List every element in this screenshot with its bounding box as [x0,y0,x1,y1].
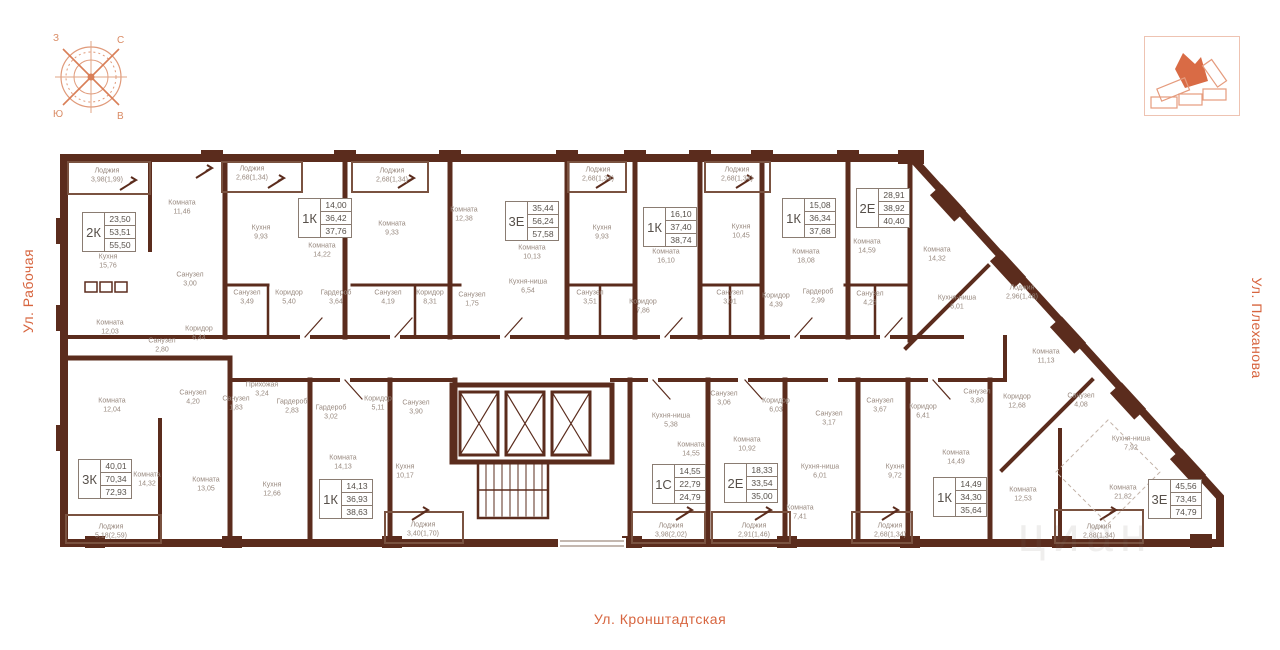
room-name: Санузел [402,399,429,408]
room-label: Санузел 3,00 [176,271,203,289]
apartment-area-total: 24,79 [675,490,705,503]
room-area: 12,04 [98,406,125,415]
room-name: Коридор [762,292,790,301]
apartment-info-box: 1К 14,00 36,42 37,76 [298,198,352,238]
room-label: Кухня-ниша 7,92 [1112,435,1150,453]
room-label: Кухня-ниша 6,54 [509,278,547,296]
room-area: 16,10 [652,257,679,266]
room-name: Лоджия [407,521,439,530]
room-name: Комната [168,199,195,208]
room-name: Коридор [762,397,790,406]
room-label: Комната 10,92 [733,436,760,454]
room-area: 6,03 [762,406,790,415]
apartment-area-living: 36,34 [805,211,835,224]
room-area: 4,28 [856,299,883,308]
apartment-area-living-min: 15,08 [805,199,835,211]
room-label: Лоджия 2,68(1,34) [376,167,408,185]
room-name: Кухня [252,224,271,233]
room-name: Гардероб [316,404,347,413]
apartment-type: 3Е [506,202,528,240]
room-area: 12,68 [1003,402,1031,411]
apartment-info-box: 2Е 28,91 38,92 40,40 [856,188,910,228]
room-area: 6,41 [909,412,937,421]
apartment-area-living-min: 23,50 [105,213,135,225]
room-label: Комната 13,05 [192,476,219,494]
room-name: Комната [133,471,160,480]
room-name: Комната [853,238,880,247]
room-area: 2,68(1,34) [376,176,408,185]
room-area: 2,91(1,46) [738,531,770,540]
room-area: 14,55 [677,450,704,459]
room-area: 14,49 [942,458,969,467]
room-name: Санузел [856,290,883,299]
room-name: Коридор [275,289,303,298]
room-name: Прихожая [246,381,278,390]
apartment-area-living: 34,30 [956,490,986,503]
room-name: Лоджия [738,522,770,531]
apartment-area-living: 36,93 [342,492,372,505]
apartment-area-total: 38,74 [666,233,696,246]
room-area: 1,75 [458,300,485,309]
room-name: Санузел [576,289,603,298]
room-label: Гардероб 3,64 [321,289,352,307]
room-label: Санузел 3,80 [963,388,990,406]
room-name: Лоджия [376,167,408,176]
room-area: 14,59 [853,247,880,256]
room-name: Кухня-ниша [509,278,547,287]
room-label: Комната 11,46 [168,199,195,217]
apartment-area-total: 72,93 [101,485,131,498]
room-area: 1,83 [222,404,249,413]
apartment-info-box: 1С 14,55 22,79 24,79 [652,464,706,504]
room-area: 7,92 [1112,444,1150,453]
room-label: Санузел 3,51 [576,289,603,307]
room-label: Лоджия 3,40(1,70) [407,521,439,539]
watermark: циан [1018,508,1154,563]
apartment-type: 2Е [725,464,747,502]
room-area: 3,51 [576,298,603,307]
room-label: Санузел 4,19 [374,289,401,307]
apartment-area-total: 35,00 [747,489,777,502]
apartment-type: 3Е [1149,480,1171,518]
room-area: 14,13 [329,463,356,472]
room-label: Кухня 9,72 [886,463,905,481]
room-label: Комната 16,10 [652,248,679,266]
room-area: 5,11 [364,404,392,413]
room-label: Комната 10,13 [518,244,545,262]
room-area: 3,98(1,99) [91,176,123,185]
room-name: Комната [923,246,950,255]
room-label: Комната 12,53 [1009,486,1036,504]
apartment-type: 1К [783,199,805,237]
room-label: Комната 12,38 [450,206,477,224]
room-area: 3,91 [716,298,743,307]
room-name: Гардероб [277,398,308,407]
apartment-info-box: 1К 14,49 34,30 35,64 [933,477,987,517]
room-area: 2,83 [277,407,308,416]
room-name: Санузел [710,390,737,399]
room-label: Комната 14,32 [923,246,950,264]
room-name: Санузел [1067,392,1094,401]
room-name: Санузел [458,291,485,300]
room-name: Санузел [815,410,842,419]
apartment-info-box: 2К 23,50 53,51 55,50 [82,212,136,252]
room-name: Комната [518,244,545,253]
apartment-area-living: 53,51 [105,225,135,238]
room-area: 7,86 [629,307,657,316]
room-label: Коридор 5,11 [364,395,392,413]
apartment-area-living-min: 14,49 [956,478,986,490]
apartment-area-living: 38,92 [879,201,909,214]
room-name: Лоджия [582,166,614,175]
room-label: Лоджия 3,98(2,02) [655,522,687,540]
room-area: 13,05 [192,485,219,494]
room-label: Лоджия 2,68(1,34) [236,165,268,183]
room-name: Лоджия [721,166,753,175]
apartment-area-total: 35,64 [956,503,986,516]
floor-plan-page: З С Ю В Ул. Рабочая Ул. Плеханова Ул. Кр… [0,0,1280,650]
room-label: Коридор 12,68 [1003,393,1031,411]
room-area: 9,72 [886,472,905,481]
apartment-area-living-min: 16,10 [666,208,696,220]
apartment-area-living: 33,54 [747,476,777,489]
room-area: 11,13 [1032,357,1059,366]
apartment-area-living-min: 40,01 [101,460,131,472]
room-name: Коридор [185,325,213,334]
room-label: Коридор 6,03 [762,397,790,415]
room-area: 3,80 [963,397,990,406]
room-area: 2,80 [148,346,175,355]
room-area: 2,99 [803,297,834,306]
room-name: Санузел [233,289,260,298]
room-label: Комната 14,32 [133,471,160,489]
room-name: Санузел [963,388,990,397]
room-name: Лоджия [236,165,268,174]
room-area: 3,17 [815,419,842,428]
room-label: Лоджия 2,68(1,34) [721,166,753,184]
room-label: Лоджия 5,18(2,59) [95,523,127,541]
room-name: Комната [329,454,356,463]
room-area: 4,08 [1067,401,1094,410]
room-name: Кухня-ниша [938,294,976,303]
room-label: Санузел 3,17 [815,410,842,428]
room-name: Кухня [263,481,282,490]
room-name: Комната [677,441,704,450]
room-label: Коридор 7,86 [629,298,657,316]
room-name: Комната [450,206,477,215]
apartment-info-box: 1К 15,08 36,34 37,68 [782,198,836,238]
room-label: Комната 14,22 [308,242,335,260]
room-area: 11,46 [168,208,195,217]
room-area: 4,39 [762,301,790,310]
apartment-type: 2Е [857,189,879,227]
room-label: Лоджия 2,68(1,34) [874,522,906,540]
room-area: 2,68(1,34) [236,174,268,183]
room-area: 3,24 [246,390,278,399]
room-name: Коридор [909,403,937,412]
room-name: Кухня-ниша [1112,435,1150,444]
room-area: 3,98(2,02) [655,531,687,540]
room-label: Комната 14,59 [853,238,880,256]
room-area: 12,66 [263,490,282,499]
apartment-area-total: 74,79 [1171,505,1201,518]
room-area: 14,22 [308,251,335,260]
apartment-area-living-min: 14,13 [342,480,372,492]
room-label: Гардероб 2,83 [277,398,308,416]
room-name: Коридор [364,395,392,404]
room-area: 5,38 [652,421,690,430]
room-name: Комната [942,449,969,458]
room-area: 3,02 [316,413,347,422]
room-label: Санузел 2,80 [148,337,175,355]
room-label: Кухня 9,93 [252,224,271,242]
room-label: Комната 12,04 [98,397,125,415]
room-label: Коридор 6,41 [909,403,937,421]
room-area: 4,19 [374,298,401,307]
room-area: 3,40(1,70) [407,530,439,539]
room-area: 12,03 [96,328,123,337]
room-name: Гардероб [321,289,352,298]
room-area: 2,68(1,34) [874,531,906,540]
room-name: Коридор [416,289,444,298]
room-name: Комната [98,397,125,406]
room-name: Кухня [886,463,905,472]
room-area: 12,53 [1009,495,1036,504]
room-name: Комната [308,242,335,251]
apartment-area-total: 55,50 [105,238,135,251]
room-name: Санузел [374,289,401,298]
room-name: Лоджия [874,522,906,531]
room-label: Санузел 3,49 [233,289,260,307]
room-label: Кухня-ниша 6,01 [801,463,839,481]
apartment-info-box: 2Е 18,33 33,54 35,00 [724,463,778,503]
room-label: Лоджия 2,68(1,34) [582,166,614,184]
room-label: Комната 11,13 [1032,348,1059,366]
site-plan-icon [1145,37,1237,113]
room-label: Комната 18,08 [792,248,819,266]
room-label: Санузел 4,28 [856,290,883,308]
site-plan-minimap [1144,36,1240,116]
room-name: Кухня [732,223,751,232]
room-area: 5,18(2,59) [95,532,127,541]
apartment-type: 1К [299,199,321,237]
room-label: Санузел 3,06 [710,390,737,408]
street-label-rabochaya: Ул. Рабочая [20,231,36,351]
room-label: Комната 14,55 [677,441,704,459]
room-area: 2,68(1,34) [721,175,753,184]
room-label: Гардероб 3,02 [316,404,347,422]
room-label: Лоджия 2,96(1,48) [1006,284,1038,302]
room-name: Санузел [179,389,206,398]
apartment-type: 1К [644,208,666,246]
room-area: 14,32 [923,255,950,264]
room-name: Комната [96,319,123,328]
room-label: Комната 12,03 [96,319,123,337]
room-area: 12,38 [450,215,477,224]
apartment-type: 1К [934,478,956,516]
room-label: Лоджия 2,91(1,46) [738,522,770,540]
room-area: 6,01 [938,303,976,312]
room-name: Комната [652,248,679,257]
room-name: Комната [733,436,760,445]
room-area: 2,68(1,34) [582,175,614,184]
room-area: 7,41 [786,513,813,522]
room-name: Комната [792,248,819,257]
compass-west-label: З [53,33,59,44]
room-label: Коридор 4,39 [762,292,790,310]
room-name: Комната [378,220,405,229]
room-area: 2,96(1,48) [1006,293,1038,302]
room-name: Кухня [396,463,415,472]
room-name: Лоджия [655,522,687,531]
room-area: 15,76 [99,262,118,271]
room-name: Гардероб [803,288,834,297]
room-label: Кухня-ниша 5,38 [652,412,690,430]
room-label: Кухня-ниша 6,01 [938,294,976,312]
compass-south-label: Ю [53,109,63,120]
room-name: Комната [1009,486,1036,495]
room-label: Кухня 9,93 [593,224,612,242]
room-name: Санузел [866,397,893,406]
room-area: 18,08 [792,257,819,266]
apartment-info-box: 3К 40,01 70,34 72,93 [78,459,132,499]
compass-east-label: В [117,111,124,122]
room-area: 9,93 [252,233,271,242]
room-area: 4,20 [179,398,206,407]
apartment-type: 1К [320,480,342,518]
room-name: Комната [786,504,813,513]
room-name: Кухня [99,253,118,262]
room-label: Комната 7,41 [786,504,813,522]
apartment-area-living-min: 35,44 [528,202,558,214]
room-area: 3,49 [233,298,260,307]
room-label: Коридор 8,31 [416,289,444,307]
room-label: Кухня 12,66 [263,481,282,499]
room-label: Комната 14,13 [329,454,356,472]
street-label-kronshtadtskaya: Ул. Кронштадтская [540,611,780,627]
room-area: 6,01 [801,472,839,481]
room-area: 3,64 [321,298,352,307]
apartment-info-box: 1К 16,10 37,40 38,74 [643,207,697,247]
room-label: Комната 14,49 [942,449,969,467]
apartment-area-living: 22,79 [675,477,705,490]
room-label: Коридор 6,44 [185,325,213,343]
room-label: Санузел 3,67 [866,397,893,415]
apartment-area-living: 70,34 [101,472,131,485]
room-area: 10,92 [733,445,760,454]
room-area: 3,00 [176,280,203,289]
room-name: Санузел [716,289,743,298]
apartment-area-living-min: 45,56 [1171,480,1201,492]
room-area: 9,33 [378,229,405,238]
room-name: Коридор [1003,393,1031,402]
room-name: Лоджия [1006,284,1038,293]
room-label: Кухня 15,76 [99,253,118,271]
room-name: Санузел [176,271,203,280]
apartment-area-total: 57,58 [528,227,558,240]
apartment-area-living-min: 28,91 [879,189,909,201]
apartment-area-total: 37,76 [321,224,351,237]
room-area: 10,13 [518,253,545,262]
room-area: 9,93 [593,233,612,242]
room-label: Санузел 3,90 [402,399,429,417]
compass-north-label: С [117,35,124,46]
apartment-area-living: 36,42 [321,211,351,224]
room-label: Санузел 4,08 [1067,392,1094,410]
apartment-info-box: 1К 14,13 36,93 38,63 [319,479,373,519]
room-area: 14,32 [133,480,160,489]
current-building-marker [1175,53,1208,88]
room-name: Санузел [148,337,175,346]
room-label: Прихожая 3,24 [246,381,278,399]
compass-rose: З С Ю В [45,25,141,129]
room-name: Комната [192,476,219,485]
room-name: Кухня-ниша [801,463,839,472]
apartment-area-total: 37,68 [805,224,835,237]
street-label-plekhanova: Ул. Плеханова [1249,263,1265,393]
apartment-area-living-min: 18,33 [747,464,777,476]
room-label: Комната 9,33 [378,220,405,238]
apartment-type: 2К [83,213,105,251]
room-area: 6,54 [509,287,547,296]
room-name: Лоджия [91,167,123,176]
room-area: 6,44 [185,334,213,343]
room-name: Коридор [629,298,657,307]
room-label: Санузел 3,91 [716,289,743,307]
room-area: 3,67 [866,406,893,415]
room-area: 3,06 [710,399,737,408]
apartment-area-living: 37,40 [666,220,696,233]
room-name: Кухня [593,224,612,233]
room-name: Комната [1032,348,1059,357]
room-area: 8,31 [416,298,444,307]
apartment-area-total: 40,40 [879,214,909,227]
room-label: Гардероб 2,99 [803,288,834,306]
apartment-area-living-min: 14,55 [675,465,705,477]
room-area: 3,90 [402,408,429,417]
apartment-type: 3К [79,460,101,498]
apartment-area-living: 56,24 [528,214,558,227]
room-name: Кухня-ниша [652,412,690,421]
apartment-area-living-min: 14,00 [321,199,351,211]
apartment-info-box: 3Е 35,44 56,24 57,58 [505,201,559,241]
room-label: Коридор 5,40 [275,289,303,307]
room-area: 10,45 [732,232,751,241]
apartment-area-total: 38,63 [342,505,372,518]
room-label: Кухня 10,17 [396,463,415,481]
apartment-type: 1С [653,465,675,503]
room-area: 10,17 [396,472,415,481]
room-label: Санузел 4,20 [179,389,206,407]
room-name: Лоджия [95,523,127,532]
room-name: Комната [1109,484,1136,493]
apartment-area-living: 73,45 [1171,492,1201,505]
room-label: Кухня 10,45 [732,223,751,241]
room-label: Лоджия 3,98(1,99) [91,167,123,185]
room-area: 21,82 [1109,493,1136,502]
apartment-info-box: 3Е 45,56 73,45 74,79 [1148,479,1202,519]
room-label: Комната 21,82 [1109,484,1136,502]
room-area: 5,40 [275,298,303,307]
room-label: Санузел 1,75 [458,291,485,309]
